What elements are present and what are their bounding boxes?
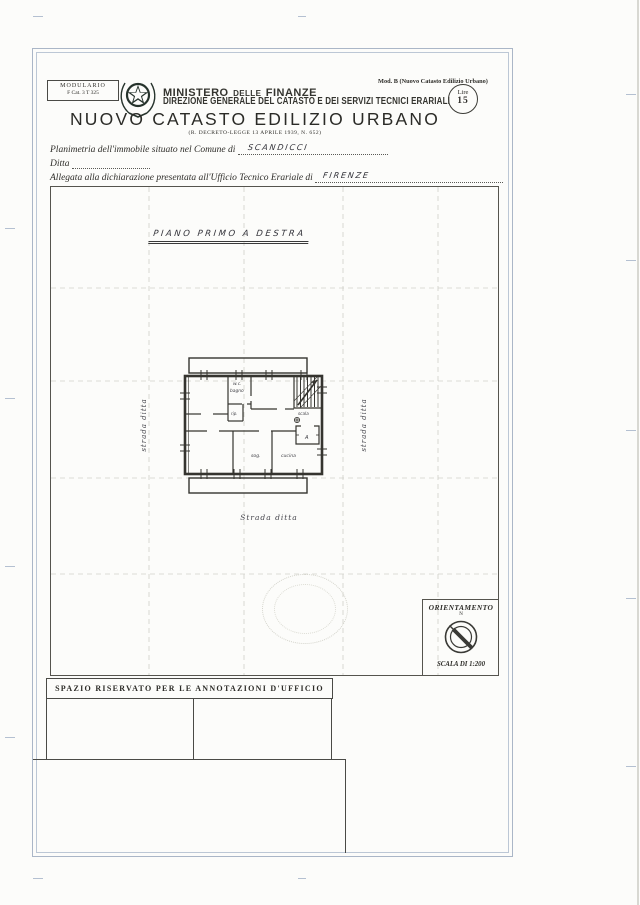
- registration-mark: [5, 228, 15, 229]
- room-label-scala: scala: [298, 411, 309, 416]
- field-ufficio-label: Allegata alla dichiarazione presentata a…: [50, 173, 313, 183]
- registration-mark: [5, 398, 15, 399]
- registration-mark: [298, 878, 306, 879]
- fee-stamp-amount: 15: [449, 97, 477, 107]
- room-label-cucina: cucina: [281, 453, 296, 459]
- boundary-label-bottom: Strada ditta: [229, 513, 309, 522]
- modulario-title: MODULARIO: [48, 83, 118, 90]
- registration-mark: [298, 16, 306, 17]
- room-label-vestibule: A: [304, 435, 309, 441]
- directorate-line: DIREZIONE GENERALE DEL CATASTO E DEI SER…: [163, 95, 450, 107]
- field-ditta-input: [72, 157, 150, 169]
- annotations-header-box: SPAZIO RISERVATO PER LE ANNOTAZIONI D'UF…: [46, 678, 333, 699]
- compass-icon: [441, 617, 481, 657]
- law-reference: (R. DECRETO-LEGGE 13 APRILE 1939, N. 652…: [40, 130, 470, 136]
- mod-reference: Mod. B (Nuovo Catasto Edilizio Urbano): [378, 78, 488, 85]
- registration-mark: [626, 598, 636, 599]
- faint-stamp-inner: [274, 584, 336, 634]
- field-ditta: Ditta: [50, 157, 150, 169]
- registration-mark: [626, 430, 636, 431]
- registration-mark: [5, 566, 15, 567]
- orientation-box: ORIENTAMENTO N SCALA DI 1:200: [422, 599, 499, 676]
- field-comune: Planimetria dell'immobile situato nel Co…: [50, 143, 388, 155]
- field-ufficio-value: FIRENZE: [315, 171, 371, 180]
- field-ditta-label: Ditta: [50, 159, 70, 169]
- registration-mark: [33, 878, 43, 879]
- registration-mark: [626, 94, 636, 95]
- annotations-column-divider-right: [331, 698, 332, 759]
- orientation-scale: SCALA DI 1:200: [423, 661, 499, 668]
- boundary-label-right: strada ditta: [360, 390, 368, 460]
- registration-mark: [626, 766, 636, 767]
- registration-mark: [626, 260, 636, 261]
- boundary-label-left: strada ditta: [140, 390, 148, 460]
- form-title: NUOVO CATASTO EDILIZIO URBANO: [40, 109, 470, 130]
- field-comune-label: Planimetria dell'immobile situato nel Co…: [50, 145, 235, 155]
- orientation-title: ORIENTAMENTO: [423, 603, 499, 612]
- field-ufficio: Allegata alla dichiarazione presentata a…: [50, 171, 503, 183]
- field-ufficio-input: FIRENZE: [315, 171, 503, 183]
- scanned-cadastral-form: MODULARIO F Cat. 3 T 325 MINISTERO DELLE…: [0, 0, 640, 905]
- room-label-bagno: bagno: [230, 388, 244, 394]
- annotations-right-rule: [345, 759, 346, 853]
- annotations-column-divider-left: [46, 698, 47, 759]
- scan-edge: [637, 0, 639, 905]
- modulario-code: F Cat. 3 T 325: [48, 90, 118, 96]
- field-comune-input: SCANDICCI: [238, 143, 388, 155]
- registration-mark: [5, 737, 15, 738]
- room-label-wc: w.c.: [233, 382, 242, 387]
- modulario-box: MODULARIO F Cat. 3 T 325: [47, 80, 119, 101]
- registration-mark: [33, 16, 43, 17]
- drawing-area: PIANO PRIMO A DESTRA: [50, 186, 499, 676]
- annotations-header: SPAZIO RISERVATO PER LE ANNOTAZIONI D'UF…: [55, 684, 324, 693]
- room-label-sog: sog.: [251, 454, 261, 459]
- annotations-column-divider-middle: [193, 698, 194, 759]
- annotations-bottom-rule: [33, 759, 345, 760]
- room-label-rip: rip.: [231, 411, 238, 416]
- field-comune-value: SCANDICCI: [237, 143, 309, 152]
